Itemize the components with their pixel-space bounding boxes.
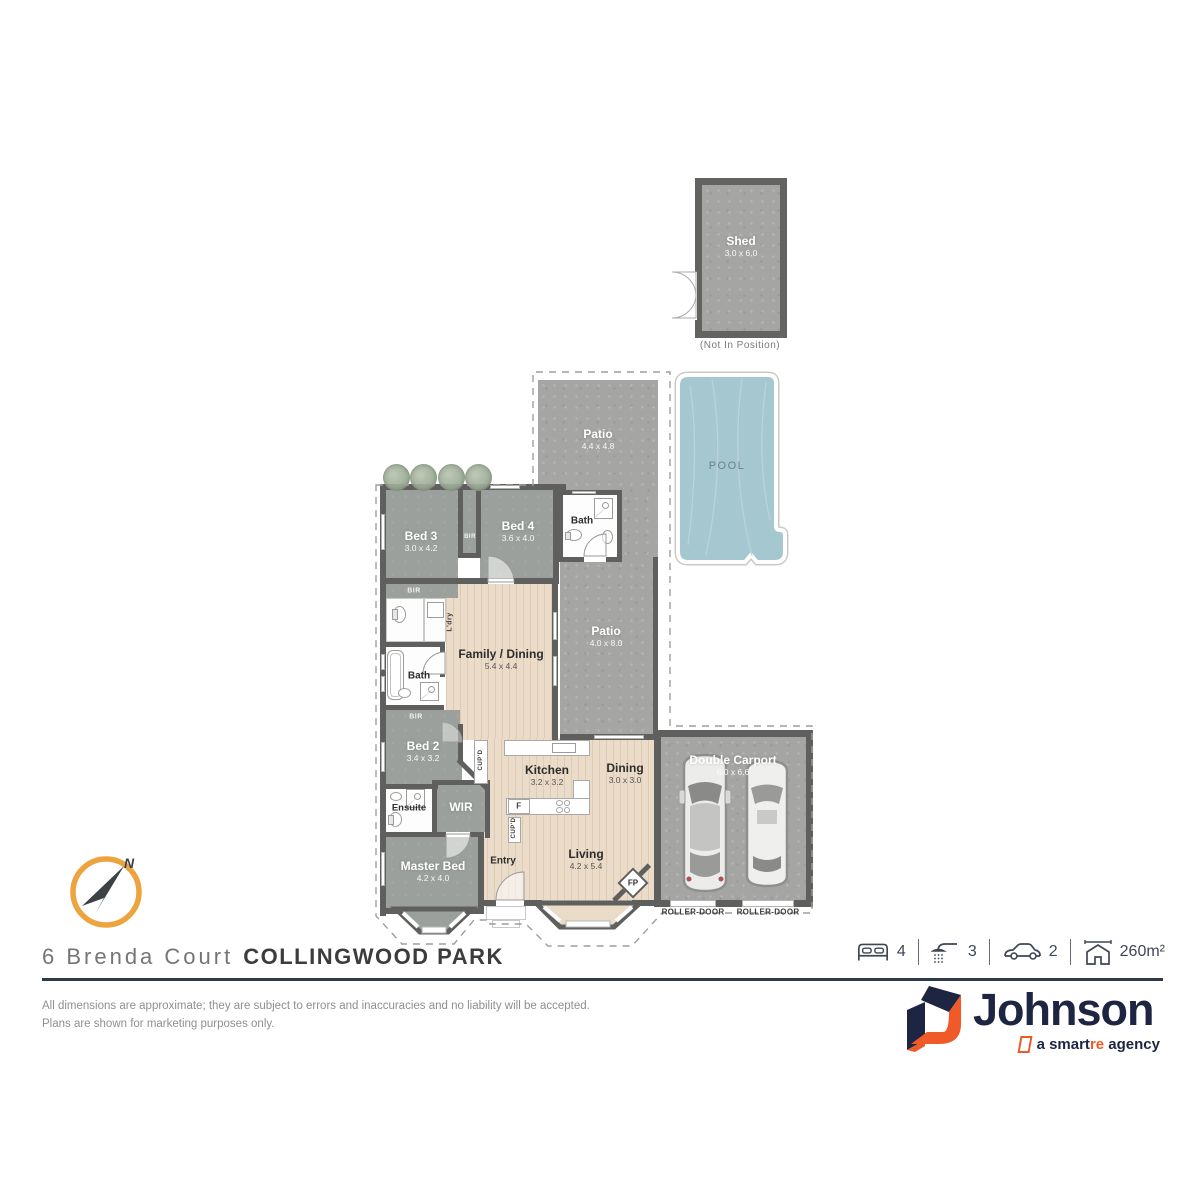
car-icon: [679, 755, 731, 891]
property-stats: 4 3 2: [856, 938, 1165, 966]
shower-icon: [931, 939, 961, 965]
disclaimer-text: All dimensions are approximate; they are…: [42, 997, 590, 1034]
stat-divider: [918, 939, 919, 965]
baths-stat: 3: [931, 939, 977, 965]
pool-label: POOL: [709, 460, 746, 472]
property-title: 6 Brenda Court COLLINGWOOD PARK: [42, 944, 504, 970]
area-stat: 260m²: [1083, 938, 1165, 966]
master-bay-window: [396, 909, 472, 933]
house-area-icon: [1083, 938, 1113, 966]
door-arcs: [423, 534, 606, 900]
beds-stat: 4: [856, 940, 906, 964]
stat-divider: [1070, 939, 1071, 965]
johnson-logo-icon: [905, 986, 971, 1058]
bed-icon: [856, 940, 890, 964]
suburb-text: COLLINGWOOD PARK: [243, 944, 504, 970]
address-text: 6 Brenda Court: [42, 944, 233, 970]
stat-divider: [989, 939, 990, 965]
floorplan-page: Shed3.0 x 6.0 (Not In Position): [0, 0, 1200, 1200]
tagline-mark-icon: [1017, 1036, 1032, 1053]
car-icon: [747, 761, 787, 886]
compass-icon: N: [73, 855, 139, 925]
johnson-logo-text: Johnson: [973, 984, 1154, 1036]
title-divider: [42, 978, 1163, 981]
car-side-icon: [1002, 941, 1042, 963]
living-bay-window: [536, 903, 640, 927]
svg-text:N: N: [124, 855, 135, 871]
agency-logo: Johnson a smartre agency: [905, 984, 1165, 1064]
agency-tagline: a smartre agency: [1019, 1036, 1160, 1053]
cars-stat: 2: [1002, 941, 1058, 963]
